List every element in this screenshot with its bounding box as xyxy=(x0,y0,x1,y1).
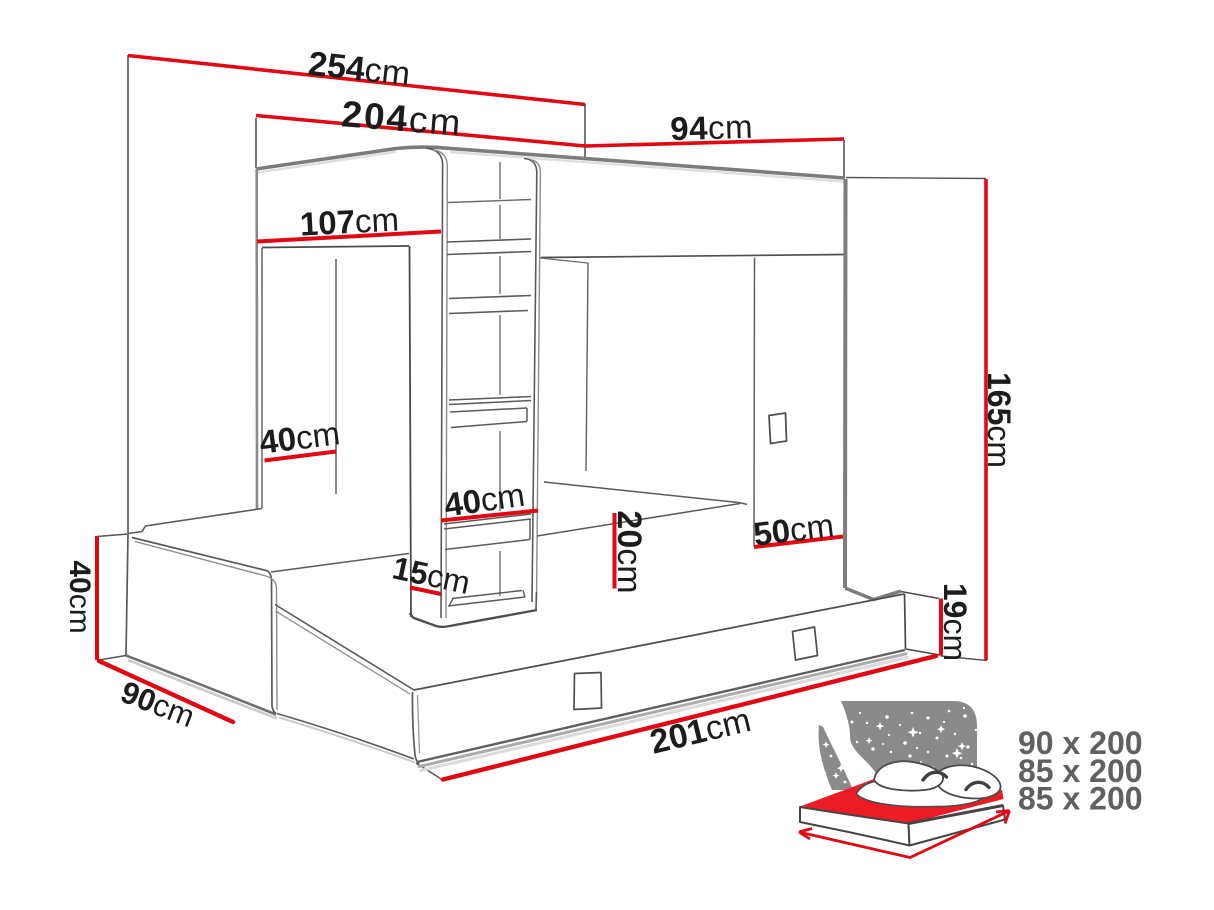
svg-text:20cm: 20cm xyxy=(610,510,648,593)
svg-text:40cm: 40cm xyxy=(63,560,96,633)
svg-text:165cm: 165cm xyxy=(981,372,1017,468)
svg-text:107cm: 107cm xyxy=(299,200,400,242)
svg-text:19cm: 19cm xyxy=(937,583,973,661)
svg-text:94cm: 94cm xyxy=(670,108,754,148)
svg-text:85 x 200: 85 x 200 xyxy=(1018,781,1143,817)
